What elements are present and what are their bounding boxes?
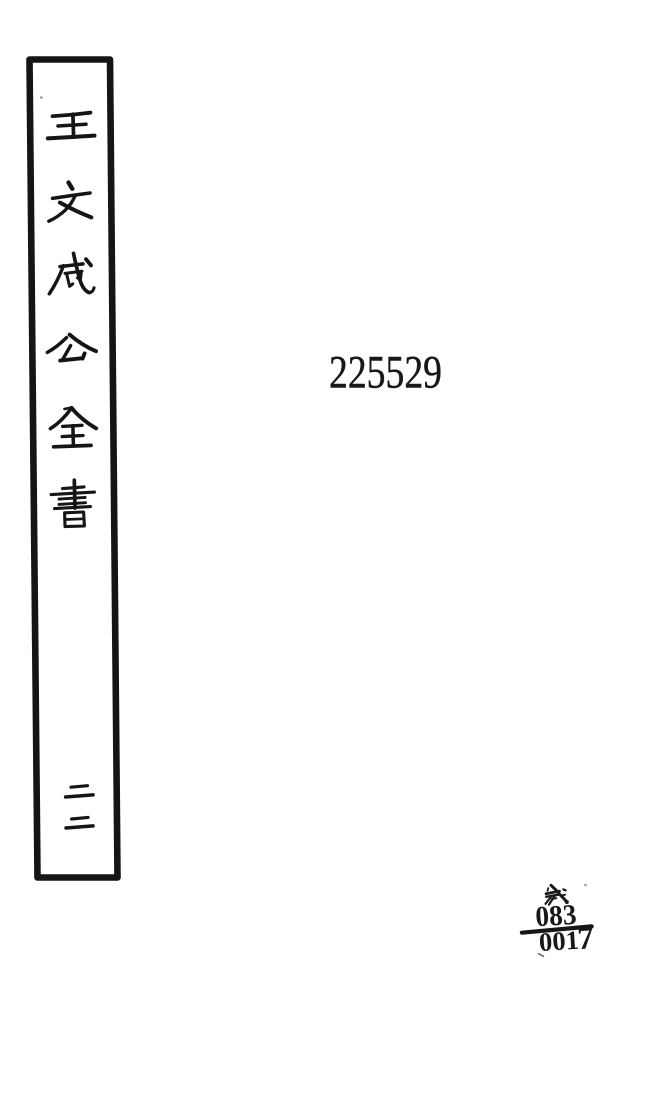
svg-text:7: 7 xyxy=(576,920,595,957)
svg-text:225529: 225529 xyxy=(329,348,442,399)
svg-text:001: 001 xyxy=(538,925,580,957)
